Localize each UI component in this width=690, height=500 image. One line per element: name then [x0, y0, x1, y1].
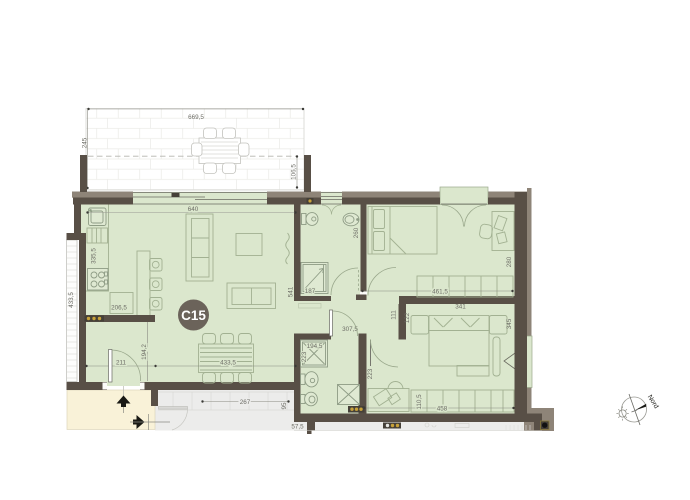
- svg-text:280: 280: [506, 256, 513, 267]
- svg-text:335,5: 335,5: [91, 248, 98, 264]
- svg-text:194,2: 194,2: [141, 344, 148, 360]
- svg-text:223: 223: [367, 368, 374, 379]
- svg-text:206,5: 206,5: [111, 305, 127, 312]
- svg-text:187: 187: [305, 288, 316, 295]
- svg-text:260: 260: [353, 227, 360, 238]
- svg-text:211: 211: [116, 360, 127, 367]
- svg-text:194,5: 194,5: [307, 343, 323, 350]
- svg-text:433,5: 433,5: [220, 360, 236, 367]
- svg-text:57,5: 57,5: [291, 424, 304, 431]
- svg-text:122: 122: [404, 312, 411, 323]
- svg-text:C15: C15: [181, 308, 206, 323]
- svg-text:110,5: 110,5: [416, 394, 423, 410]
- svg-text:458: 458: [437, 406, 448, 413]
- svg-text:433,5: 433,5: [68, 292, 75, 308]
- svg-text:341: 341: [455, 304, 466, 311]
- svg-text:541: 541: [288, 286, 295, 297]
- svg-text:267: 267: [240, 399, 251, 406]
- svg-text:461,5: 461,5: [432, 289, 448, 296]
- svg-text:106,5: 106,5: [291, 164, 298, 180]
- svg-text:95: 95: [281, 402, 288, 410]
- svg-text:345: 345: [506, 318, 513, 329]
- svg-text:669,5: 669,5: [188, 114, 204, 121]
- svg-text:223: 223: [301, 351, 308, 362]
- svg-text:640: 640: [188, 206, 199, 213]
- svg-text:111: 111: [391, 310, 398, 320]
- svg-text:245: 245: [82, 137, 89, 148]
